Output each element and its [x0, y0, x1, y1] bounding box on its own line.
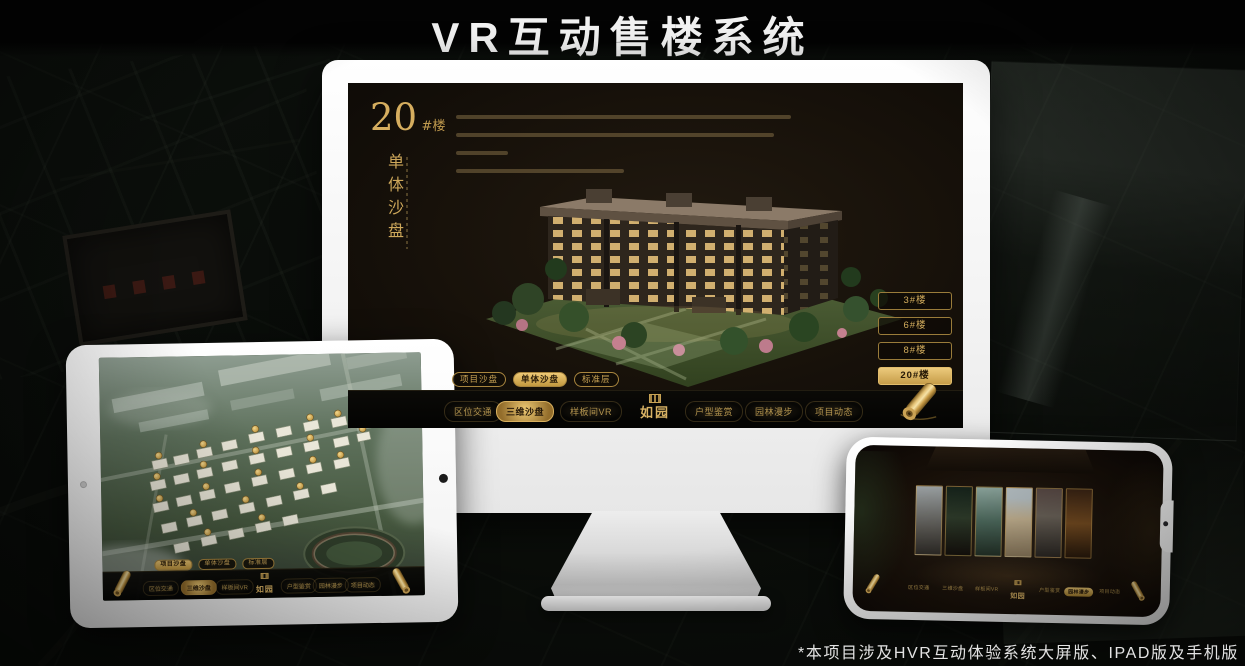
nav-item-3d-sandtable[interactable]: 三维沙盘 [942, 585, 963, 592]
building-number-unit: #楼 [422, 119, 446, 134]
subtab-single-sandtable[interactable]: 单体沙盘 [513, 372, 567, 387]
nav-item-location-traffic[interactable]: 区位交通 [143, 580, 179, 596]
scroll-icon[interactable] [1127, 578, 1154, 605]
nav-item-showroom-vr[interactable]: 样板间VR [975, 585, 999, 592]
gallery-panel[interactable] [1034, 488, 1062, 559]
nav-item-project-news[interactable]: 项目动态 [1099, 588, 1120, 595]
tablet-device: 项目沙盘 单体沙盘 标准层 区位交通 三维沙盘 样板间VR 如园 户型鉴赏 园林… [66, 339, 459, 629]
monitor-navbar: 区位交通 三维沙盘 样板间VR 如园 户型鉴赏 园林漫步 项目动态 [348, 390, 963, 428]
floor-button-group: 3#楼 6#楼 8#楼 20#楼 [878, 292, 952, 385]
floor-button-8[interactable]: 8#楼 [878, 342, 952, 360]
tablet-camera-icon [80, 481, 87, 488]
page-title: VR互动售楼系统 [0, 4, 1245, 65]
subtab-standard-floor[interactable]: 标准层 [574, 372, 619, 387]
subtab-standard-floor[interactable]: 标准层 [242, 558, 274, 570]
heading-divider [406, 157, 408, 249]
nav-item-unit-gallery[interactable]: 户型鉴赏 [685, 401, 743, 422]
brand-logo: 如园 [256, 573, 274, 596]
floor-button-6[interactable]: 6#楼 [878, 317, 952, 335]
gallery-panel[interactable] [974, 486, 1002, 557]
floor-button-3[interactable]: 3#楼 [878, 292, 952, 310]
phone-device: 区位交通 三维沙盘 样板间VR 如园 户型鉴赏 园林漫步 项目动态 [843, 437, 1173, 626]
gallery-panel[interactable] [1064, 488, 1092, 559]
tablet-home-button[interactable] [439, 474, 448, 483]
phone-screen: 区位交通 三维沙盘 样板间VR 如园 户型鉴赏 园林漫步 项目动态 [852, 445, 1163, 617]
footnote-text: *本项目涉及HVR互动体验系统大屏版、IPAD版及手机版 [798, 639, 1239, 663]
nav-item-project-news[interactable]: 项目动态 [805, 401, 863, 422]
tablet-navbar: 区位交通 三维沙盘 样板间VR 如园 户型鉴赏 园林漫步 项目动态 [103, 566, 425, 601]
nav-item-garden-walk[interactable]: 园林漫步 [313, 578, 349, 594]
scroll-icon[interactable] [861, 572, 888, 599]
nav-item-garden-walk[interactable]: 园林漫步 [745, 401, 803, 422]
scroll-icon[interactable] [896, 379, 948, 428]
nav-item-project-news[interactable]: 项目动态 [345, 577, 381, 593]
scroll-icon[interactable] [106, 568, 141, 601]
monitor-base [541, 596, 771, 611]
subtab-single-sandtable[interactable]: 单体沙盘 [198, 558, 236, 570]
nav-item-location-traffic[interactable]: 区位交通 [444, 401, 502, 422]
gallery-panels [914, 485, 1092, 559]
nav-item-garden-walk[interactable]: 园林漫步 [1064, 587, 1093, 597]
phone-camera-icon [1163, 521, 1168, 526]
square-seal-icon [649, 394, 661, 403]
subtab-project-sandtable[interactable]: 项目沙盘 [154, 559, 192, 571]
gallery-panel[interactable] [944, 486, 972, 557]
building-subtitle-vertical: 单体沙盘 [382, 153, 406, 245]
nav-item-unit-gallery[interactable]: 户型鉴赏 [281, 578, 317, 594]
nav-item-showroom-vr[interactable]: 样板间VR [560, 401, 622, 422]
building-3d-model[interactable] [436, 149, 911, 389]
sandtable-subtabs: 项目沙盘 单体沙盘 标准层 [452, 372, 619, 387]
building-number: 20 [370, 96, 417, 139]
tablet-subtabs: 项目沙盘 单体沙盘 标准层 [154, 558, 274, 571]
brand-logo: 如园 [1010, 580, 1025, 602]
pavilion-beam [925, 446, 1095, 474]
subtab-project-sandtable[interactable]: 项目沙盘 [452, 372, 506, 387]
square-seal-icon [1014, 580, 1021, 585]
phone-notch [1160, 500, 1174, 552]
nav-item-location-traffic[interactable]: 区位交通 [908, 584, 929, 591]
gallery-panel[interactable] [1004, 487, 1032, 558]
square-seal-icon [261, 573, 269, 579]
building-heading: 20 #楼 [370, 99, 445, 136]
nav-item-3d-sandtable[interactable]: 三维沙盘 [496, 401, 554, 422]
scroll-icon[interactable] [386, 563, 421, 598]
nav-item-3d-sandtable[interactable]: 三维沙盘 [181, 580, 217, 596]
nav-item-showroom-vr[interactable]: 样板间VR [216, 579, 255, 595]
brand-logo: 如园 [640, 394, 670, 421]
gallery-panel[interactable] [914, 485, 942, 556]
nav-item-unit-gallery[interactable]: 户型鉴赏 [1039, 587, 1060, 594]
